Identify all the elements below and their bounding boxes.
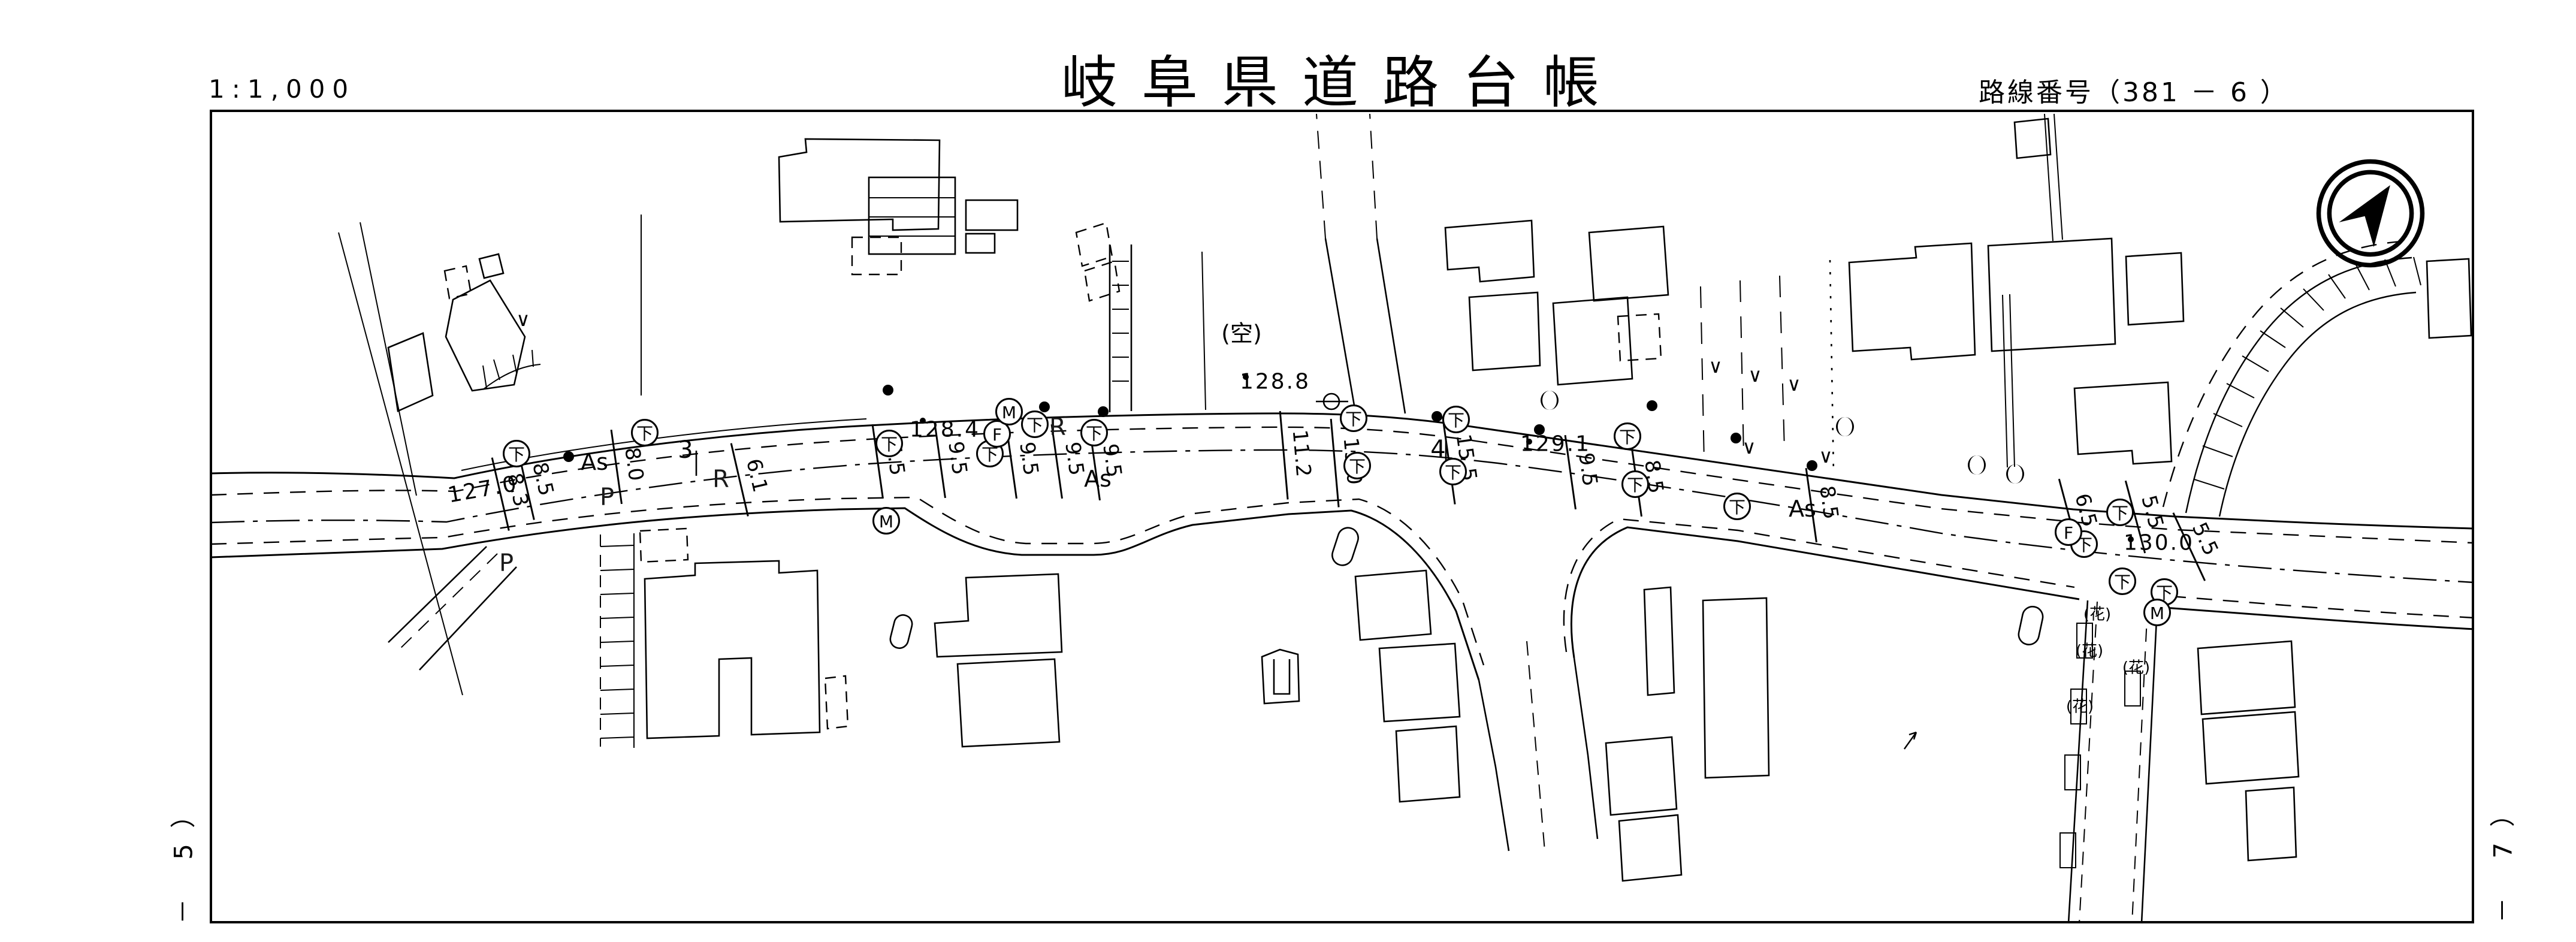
utility-symbol-sewer: 下: [1439, 458, 1467, 485]
utility-symbol-sewer: 下: [1343, 452, 1371, 479]
vegetation-mark: ∨: [1819, 445, 1832, 467]
flowerbed-symbol: (花): [2066, 695, 2094, 717]
utility-symbol-sewer: 下: [875, 430, 903, 457]
utility-pole: [1647, 400, 1657, 411]
tree-symbol: [2006, 464, 2024, 484]
surface-type-label: As: [1789, 496, 1816, 522]
utility-pole: [1098, 406, 1109, 417]
tree-symbol: [1541, 391, 1559, 410]
surface-type-label: As: [1084, 466, 1112, 492]
utility-symbol-sewer: 下: [1021, 410, 1049, 438]
flowerbed-symbol: (花): [2076, 639, 2103, 661]
width-label: 9.5: [943, 440, 972, 477]
width-label: 9.5: [1574, 451, 1602, 488]
flowerbed-symbol: (花): [2122, 656, 2150, 678]
utility-symbol-sewer: 下: [2106, 499, 2134, 526]
zone-letter: R: [712, 466, 729, 493]
width-label: 8.0: [620, 446, 648, 483]
width-label: 8.5: [1814, 484, 1843, 521]
utility-symbol-fire-hydrant: F: [2055, 518, 2082, 546]
utility-pole: [1731, 433, 1741, 443]
utility-symbol-sewer: 下: [1080, 419, 1108, 446]
utility-pole: [563, 451, 574, 462]
zone-letter: R: [1049, 413, 1066, 441]
map-annotations: 127.0128.4128.8129.1130.08.38.58.06.15.5…: [0, 0, 2576, 942]
width-label: 5.5: [2187, 519, 2223, 560]
vegetation-mark: ∨: [1742, 436, 1756, 458]
tree-symbol: [1836, 417, 1854, 436]
utility-pole: [1039, 401, 1050, 412]
station-number: 4: [1430, 436, 1445, 463]
utility-symbol-manhole: M: [872, 507, 900, 535]
utility-symbol-sewer: 下: [631, 419, 659, 446]
width-label: 11.2: [1288, 429, 1316, 479]
width-label: 8.5: [527, 460, 558, 499]
utility-symbol-sewer: 下: [1442, 406, 1470, 433]
utility-pole: [883, 385, 893, 395]
utility-pole: [1432, 411, 1442, 422]
utility-symbol-sewer: 下: [2109, 567, 2136, 595]
zone-letter: P: [499, 549, 514, 577]
width-label: 9.5: [1014, 440, 1043, 478]
utility-symbol-manhole: M: [995, 398, 1023, 425]
area-label: (空): [1221, 315, 1262, 348]
elevation-label: 128.4: [910, 418, 980, 442]
vegetation-mark: ∨: [516, 308, 530, 331]
surface-type-label: As: [581, 449, 608, 475]
vegetation-mark: ∨: [1708, 355, 1722, 378]
utility-pole: [1534, 424, 1545, 435]
vegetation-mark: ∨: [1748, 364, 1762, 387]
utility-symbol-sewer: 下: [503, 440, 530, 467]
utility-symbol-sewer: 下: [1621, 470, 1649, 498]
utility-symbol-sewer: 下: [1614, 422, 1641, 450]
utility-symbol-manhole: M: [2143, 599, 2171, 626]
utility-symbol-sewer: 下: [1340, 404, 1367, 432]
width-label: 5.5: [2136, 493, 2168, 532]
elevation-label: 129.1: [1520, 432, 1591, 457]
tree-symbol: [1968, 455, 1986, 475]
station-number: 3: [678, 436, 693, 464]
width-label: 6.1: [741, 457, 772, 496]
elevation-label: 128.8: [1240, 370, 1310, 394]
flowerbed-symbol: (花): [2083, 602, 2111, 624]
vegetation-mark: ∨: [1787, 373, 1801, 395]
utility-symbol-sewer: 下: [1723, 493, 1751, 520]
utility-pole: [1807, 460, 1817, 471]
width-label: 8.3: [502, 471, 533, 510]
zone-letter: P: [600, 484, 614, 511]
